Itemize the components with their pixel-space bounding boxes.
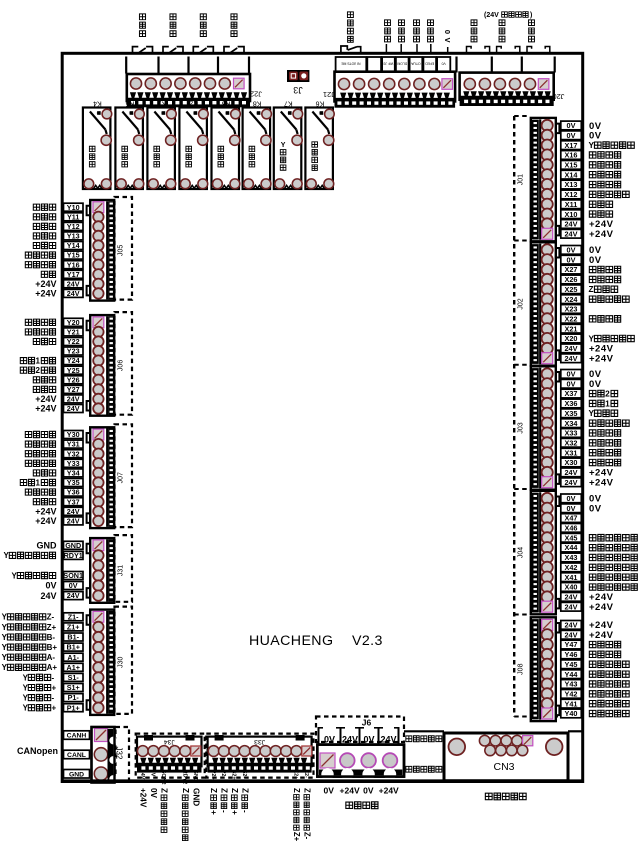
svg-text:Y23: Y23 xyxy=(67,347,80,356)
svg-text:+: + xyxy=(52,704,57,713)
svg-text:-: - xyxy=(52,694,55,703)
svg-text:J3: J3 xyxy=(293,85,303,95)
svg-text:0: 0 xyxy=(443,30,452,34)
svg-text:24V: 24V xyxy=(139,770,145,780)
svg-text:Y36: Y36 xyxy=(67,488,80,497)
svg-text:+24V: +24V xyxy=(589,602,614,613)
svg-text:Y20: Y20 xyxy=(67,318,80,327)
svg-text:+24V: +24V xyxy=(35,507,56,517)
svg-text:J08: J08 xyxy=(518,663,525,674)
svg-text:+24V: +24V xyxy=(589,630,614,641)
svg-text:24V: 24V xyxy=(565,602,578,611)
svg-text:CANL: CANL xyxy=(67,752,86,759)
svg-text:24V: 24V xyxy=(40,591,56,601)
svg-text:S2+: S2+ xyxy=(231,770,237,780)
svg-text:Y47: Y47 xyxy=(565,640,578,649)
svg-text:Y32: Y32 xyxy=(67,449,80,458)
svg-text:X42: X42 xyxy=(565,563,578,572)
svg-text:J03: J03 xyxy=(518,422,525,433)
svg-text:1: 1 xyxy=(605,398,610,408)
svg-text:Y37: Y37 xyxy=(67,497,80,506)
svg-text:X24: X24 xyxy=(565,295,579,304)
svg-text:HUACHENG: HUACHENG xyxy=(249,633,333,649)
svg-text:K1: K1 xyxy=(158,99,167,106)
svg-text:X12: X12 xyxy=(565,190,578,199)
svg-text:V: V xyxy=(443,38,452,43)
svg-text:(24V: (24V xyxy=(484,12,499,19)
svg-text:Y: Y xyxy=(2,623,8,632)
svg-text:0V: 0V xyxy=(567,379,576,388)
svg-text:Z: Z xyxy=(589,284,594,294)
svg-text:0V: 0V xyxy=(567,121,576,130)
svg-text:J06: J06 xyxy=(117,360,124,371)
svg-text:X26: X26 xyxy=(565,275,578,284)
svg-text:+: + xyxy=(209,810,218,815)
svg-text:A1+: A1+ xyxy=(67,663,80,672)
svg-text:Z2-: Z2- xyxy=(303,770,309,778)
svg-text:24V: 24V xyxy=(380,734,396,744)
svg-text:GND: GND xyxy=(191,788,200,806)
svg-text:24V: 24V xyxy=(67,289,80,298)
svg-text:+24V: +24V xyxy=(35,404,56,414)
svg-text:Z+: Z+ xyxy=(292,832,301,842)
svg-text:X25: X25 xyxy=(565,285,578,294)
svg-text:J32: J32 xyxy=(115,747,124,760)
svg-text:Z-: Z- xyxy=(47,613,55,622)
svg-text:Y: Y xyxy=(23,673,29,682)
svg-text:J22: J22 xyxy=(250,90,262,99)
svg-text:+24V: +24V xyxy=(589,478,614,489)
svg-text:24V: 24V xyxy=(67,507,80,516)
svg-text:J05: J05 xyxy=(117,245,124,256)
svg-text:Y25: Y25 xyxy=(67,366,80,375)
svg-text:Y14: Y14 xyxy=(67,241,80,250)
svg-text:X44: X44 xyxy=(565,543,579,552)
svg-text:X14: X14 xyxy=(565,170,579,179)
svg-text:Z-: Z- xyxy=(302,832,311,840)
svg-text:+24V: +24V xyxy=(589,354,614,365)
svg-text:-: - xyxy=(220,810,229,813)
svg-text:): ) xyxy=(530,12,532,19)
svg-text:+24V: +24V xyxy=(35,279,56,289)
svg-text:S2-: S2- xyxy=(241,770,247,779)
svg-text:1: 1 xyxy=(36,357,41,366)
svg-text:24V: 24V xyxy=(565,621,578,630)
svg-text:Y: Y xyxy=(4,551,10,560)
svg-text:0V: 0V xyxy=(567,504,576,513)
svg-text:Y: Y xyxy=(589,140,595,150)
svg-text:24V: 24V xyxy=(67,591,80,600)
svg-text:K5: K5 xyxy=(126,99,135,106)
svg-text:24V: 24V xyxy=(565,354,578,363)
svg-text:0V: 0V xyxy=(363,734,374,744)
svg-text:Y: Y xyxy=(23,683,29,692)
svg-text:A1-: A1- xyxy=(67,653,79,662)
svg-text:J20: J20 xyxy=(552,92,564,101)
svg-text:Y12: Y12 xyxy=(67,222,80,231)
svg-text:0V: 0V xyxy=(589,504,602,515)
svg-text:24V: 24V xyxy=(565,220,578,229)
svg-text:B+: B+ xyxy=(47,643,58,652)
svg-text:+24V: +24V xyxy=(35,394,56,404)
svg-text:X31: X31 xyxy=(565,448,578,457)
svg-text:P2+: P2+ xyxy=(210,770,216,780)
svg-text:J07: J07 xyxy=(118,472,125,483)
svg-text:K4: K4 xyxy=(93,99,102,106)
svg-text:Y24: Y24 xyxy=(67,356,80,365)
svg-text:X37: X37 xyxy=(565,389,578,398)
svg-text:Z1+: Z1+ xyxy=(67,623,80,632)
svg-text:P1-: P1- xyxy=(68,693,80,702)
svg-text:EFED: EFED xyxy=(425,62,435,66)
svg-text:24V: 24V xyxy=(67,395,80,404)
svg-text:RDY1: RDY1 xyxy=(64,551,83,560)
svg-text:X45: X45 xyxy=(565,533,578,542)
svg-text:Y: Y xyxy=(23,694,29,703)
svg-text:Y: Y xyxy=(2,613,8,622)
svg-text:X11: X11 xyxy=(565,200,578,209)
svg-text:Y17: Y17 xyxy=(67,270,80,279)
svg-text:S1+: S1+ xyxy=(67,683,80,692)
svg-text:0V: 0V xyxy=(69,581,78,590)
svg-text:A+: A+ xyxy=(47,663,58,672)
svg-text:Y22: Y22 xyxy=(67,337,80,346)
svg-text:GND: GND xyxy=(65,541,81,550)
svg-text:24V: 24V xyxy=(67,517,80,526)
svg-text:X10: X10 xyxy=(565,210,578,219)
svg-text:+24V: +24V xyxy=(138,788,147,808)
svg-text:X21: X21 xyxy=(565,324,578,333)
svg-text:0V: 0V xyxy=(323,786,334,796)
svg-text:Y: Y xyxy=(281,142,286,149)
svg-text:J33: J33 xyxy=(254,738,265,745)
svg-text:X23: X23 xyxy=(565,305,578,314)
svg-text:P1+: P1+ xyxy=(67,703,80,712)
svg-text:+24V: +24V xyxy=(589,229,614,240)
svg-text:Y43: Y43 xyxy=(565,680,578,689)
svg-text:Y16: Y16 xyxy=(67,260,80,269)
svg-text:X43: X43 xyxy=(565,553,578,562)
svg-text:CN3: CN3 xyxy=(493,761,514,773)
svg-text:0V: 0V xyxy=(589,255,602,266)
svg-text:Y: Y xyxy=(589,408,595,418)
svg-text:J02: J02 xyxy=(518,298,525,309)
svg-text:24V: 24V xyxy=(565,344,578,353)
svg-text:0V: 0V xyxy=(567,370,576,379)
svg-text:Y: Y xyxy=(2,643,8,652)
svg-text:X13: X13 xyxy=(565,180,578,189)
svg-text:X16: X16 xyxy=(565,151,578,160)
svg-text:Y35: Y35 xyxy=(67,478,80,487)
svg-text:0V: 0V xyxy=(150,770,156,777)
svg-text:0V: 0V xyxy=(324,734,335,744)
svg-text:Y15: Y15 xyxy=(67,251,80,260)
svg-text:Y46: Y46 xyxy=(565,650,578,659)
svg-text:Y30: Y30 xyxy=(67,430,80,439)
svg-text:A-: A- xyxy=(47,653,56,662)
svg-text:S1-: S1- xyxy=(68,673,80,682)
svg-text:J6: J6 xyxy=(362,718,372,728)
svg-text:V0: V0 xyxy=(442,62,446,66)
svg-text:SON1: SON1 xyxy=(63,571,83,580)
svg-text:0V: 0V xyxy=(149,788,158,799)
svg-text:Y27: Y27 xyxy=(67,385,80,394)
svg-text:Z: Z xyxy=(292,788,301,793)
svg-text:Z: Z xyxy=(160,788,169,793)
svg-text:1: 1 xyxy=(36,478,41,487)
svg-text:J30: J30 xyxy=(117,657,124,668)
svg-text:X35: X35 xyxy=(565,409,578,418)
svg-text:K3: K3 xyxy=(222,99,231,106)
svg-text:NI dOTS ME: NI dOTS ME xyxy=(341,62,361,66)
svg-text:0V: 0V xyxy=(363,786,374,796)
svg-text:Y13: Y13 xyxy=(67,232,80,241)
svg-text:24V: 24V xyxy=(565,630,578,639)
svg-text:Y31: Y31 xyxy=(67,440,80,449)
svg-text:J01: J01 xyxy=(518,174,525,185)
svg-text:GND: GND xyxy=(37,541,58,551)
svg-text:Z: Z xyxy=(220,788,229,793)
svg-text:Z: Z xyxy=(302,788,311,793)
svg-text:24V: 24V xyxy=(565,478,578,487)
svg-text:+24V: +24V xyxy=(379,786,399,796)
svg-text:OTUA: OTUA xyxy=(410,62,420,66)
svg-text:Y11: Y11 xyxy=(67,212,79,221)
svg-text:B1+: B1+ xyxy=(67,643,80,652)
svg-text:+24V: +24V xyxy=(35,289,56,299)
svg-text:X15: X15 xyxy=(565,161,578,170)
svg-text:+: + xyxy=(230,810,239,815)
svg-text:WF J3: WF J3 xyxy=(383,62,393,66)
svg-text:X30: X30 xyxy=(565,458,578,467)
svg-text:X34: X34 xyxy=(565,419,579,428)
svg-text:Z+: Z+ xyxy=(47,623,57,632)
svg-text:Y33: Y33 xyxy=(67,459,80,468)
svg-text:Y42: Y42 xyxy=(565,690,578,699)
svg-text:Y: Y xyxy=(2,663,8,672)
svg-text:0V: 0V xyxy=(567,255,576,264)
svg-text:DLOM: DLOM xyxy=(397,62,407,66)
svg-text:24V: 24V xyxy=(67,404,80,413)
svg-text:24V: 24V xyxy=(342,734,358,744)
svg-text:Y: Y xyxy=(2,633,8,642)
svg-text:J34: J34 xyxy=(164,738,175,745)
svg-text:24V: 24V xyxy=(67,279,80,288)
svg-text:+24V: +24V xyxy=(35,516,56,526)
svg-text:24V: 24V xyxy=(565,593,578,602)
svg-text:X20: X20 xyxy=(565,334,578,343)
svg-text:X27: X27 xyxy=(565,265,578,274)
svg-text:Y21: Y21 xyxy=(67,328,80,337)
svg-text:Y34: Y34 xyxy=(67,469,80,478)
svg-text:24V: 24V xyxy=(565,468,578,477)
svg-text:Y: Y xyxy=(12,571,18,580)
svg-text:Z: Z xyxy=(240,788,249,793)
svg-text:Z1-: Z1- xyxy=(68,612,79,621)
svg-text:Y40: Y40 xyxy=(565,709,578,718)
svg-text:Z: Z xyxy=(209,788,218,793)
svg-text:B-: B- xyxy=(47,633,56,642)
svg-text:X46: X46 xyxy=(565,524,578,533)
svg-text:X17: X17 xyxy=(565,141,578,150)
svg-text:0V: 0V xyxy=(567,131,576,140)
svg-text:-: - xyxy=(240,810,249,813)
svg-text:Y: Y xyxy=(589,334,595,344)
svg-text:K2: K2 xyxy=(190,99,199,106)
svg-text:2: 2 xyxy=(36,366,41,375)
svg-text:J31: J31 xyxy=(117,565,124,576)
svg-text:Y44: Y44 xyxy=(565,670,579,679)
svg-text:Y26: Y26 xyxy=(67,375,80,384)
svg-text:X33: X33 xyxy=(565,429,578,438)
svg-text:+24V: +24V xyxy=(340,786,360,796)
svg-text:0V: 0V xyxy=(45,581,56,591)
svg-text:K7: K7 xyxy=(284,99,293,106)
svg-text:2: 2 xyxy=(605,389,610,399)
svg-text:Z2+: Z2+ xyxy=(293,770,299,779)
svg-text:X32: X32 xyxy=(565,438,578,447)
svg-text:CANH: CANH xyxy=(67,733,87,740)
svg-text:X22: X22 xyxy=(565,314,578,323)
svg-text:K6: K6 xyxy=(316,99,325,106)
svg-text:GND: GND xyxy=(69,771,84,778)
svg-text:Z: Z xyxy=(230,788,239,793)
svg-text:+: + xyxy=(52,683,57,692)
svg-text:J04: J04 xyxy=(518,547,525,558)
svg-text:Y10: Y10 xyxy=(67,203,80,212)
svg-text:Y: Y xyxy=(23,704,29,713)
svg-text:J21: J21 xyxy=(323,90,335,99)
svg-text:0V: 0V xyxy=(567,246,576,255)
svg-text:0V: 0V xyxy=(567,494,576,503)
svg-text:Z: Z xyxy=(181,788,190,793)
svg-text:B1-: B1- xyxy=(67,633,79,642)
svg-text:X40: X40 xyxy=(565,583,578,592)
svg-text:P2-: P2- xyxy=(220,770,226,779)
svg-text:0V: 0V xyxy=(589,379,602,390)
svg-text:Y: Y xyxy=(2,653,8,662)
svg-text:24V: 24V xyxy=(565,229,578,238)
svg-text:-: - xyxy=(52,673,55,682)
svg-text:V2.3: V2.3 xyxy=(352,633,383,649)
svg-text:Y41: Y41 xyxy=(565,699,578,708)
svg-text:CANopen: CANopen xyxy=(17,746,58,756)
svg-text:X47: X47 xyxy=(565,514,578,523)
svg-text:Y45: Y45 xyxy=(565,660,578,669)
svg-text:X36: X36 xyxy=(565,399,578,408)
svg-text:K8: K8 xyxy=(253,99,262,106)
svg-text:X41: X41 xyxy=(565,573,578,582)
